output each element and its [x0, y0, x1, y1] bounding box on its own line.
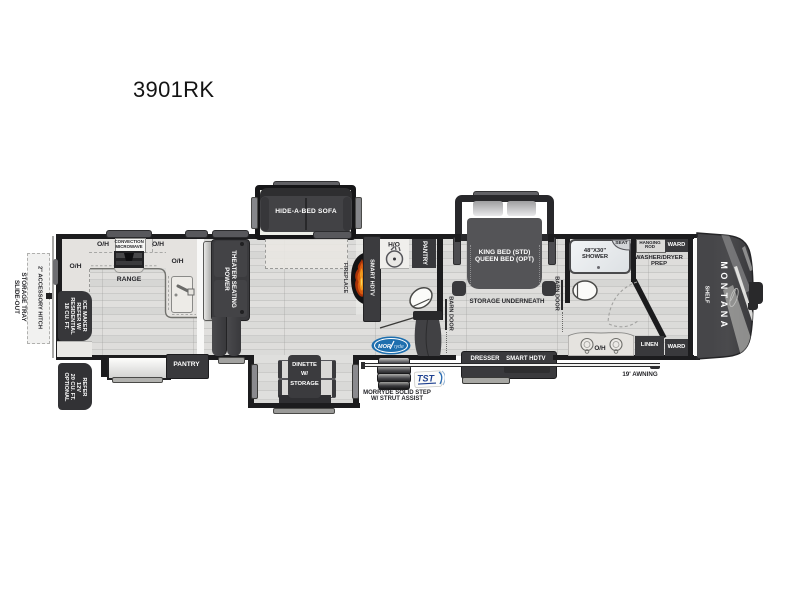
svg-text:ryde: ryde — [394, 344, 404, 350]
svg-text:TST: TST — [417, 374, 436, 384]
svg-text:MOR: MOR — [378, 344, 391, 350]
